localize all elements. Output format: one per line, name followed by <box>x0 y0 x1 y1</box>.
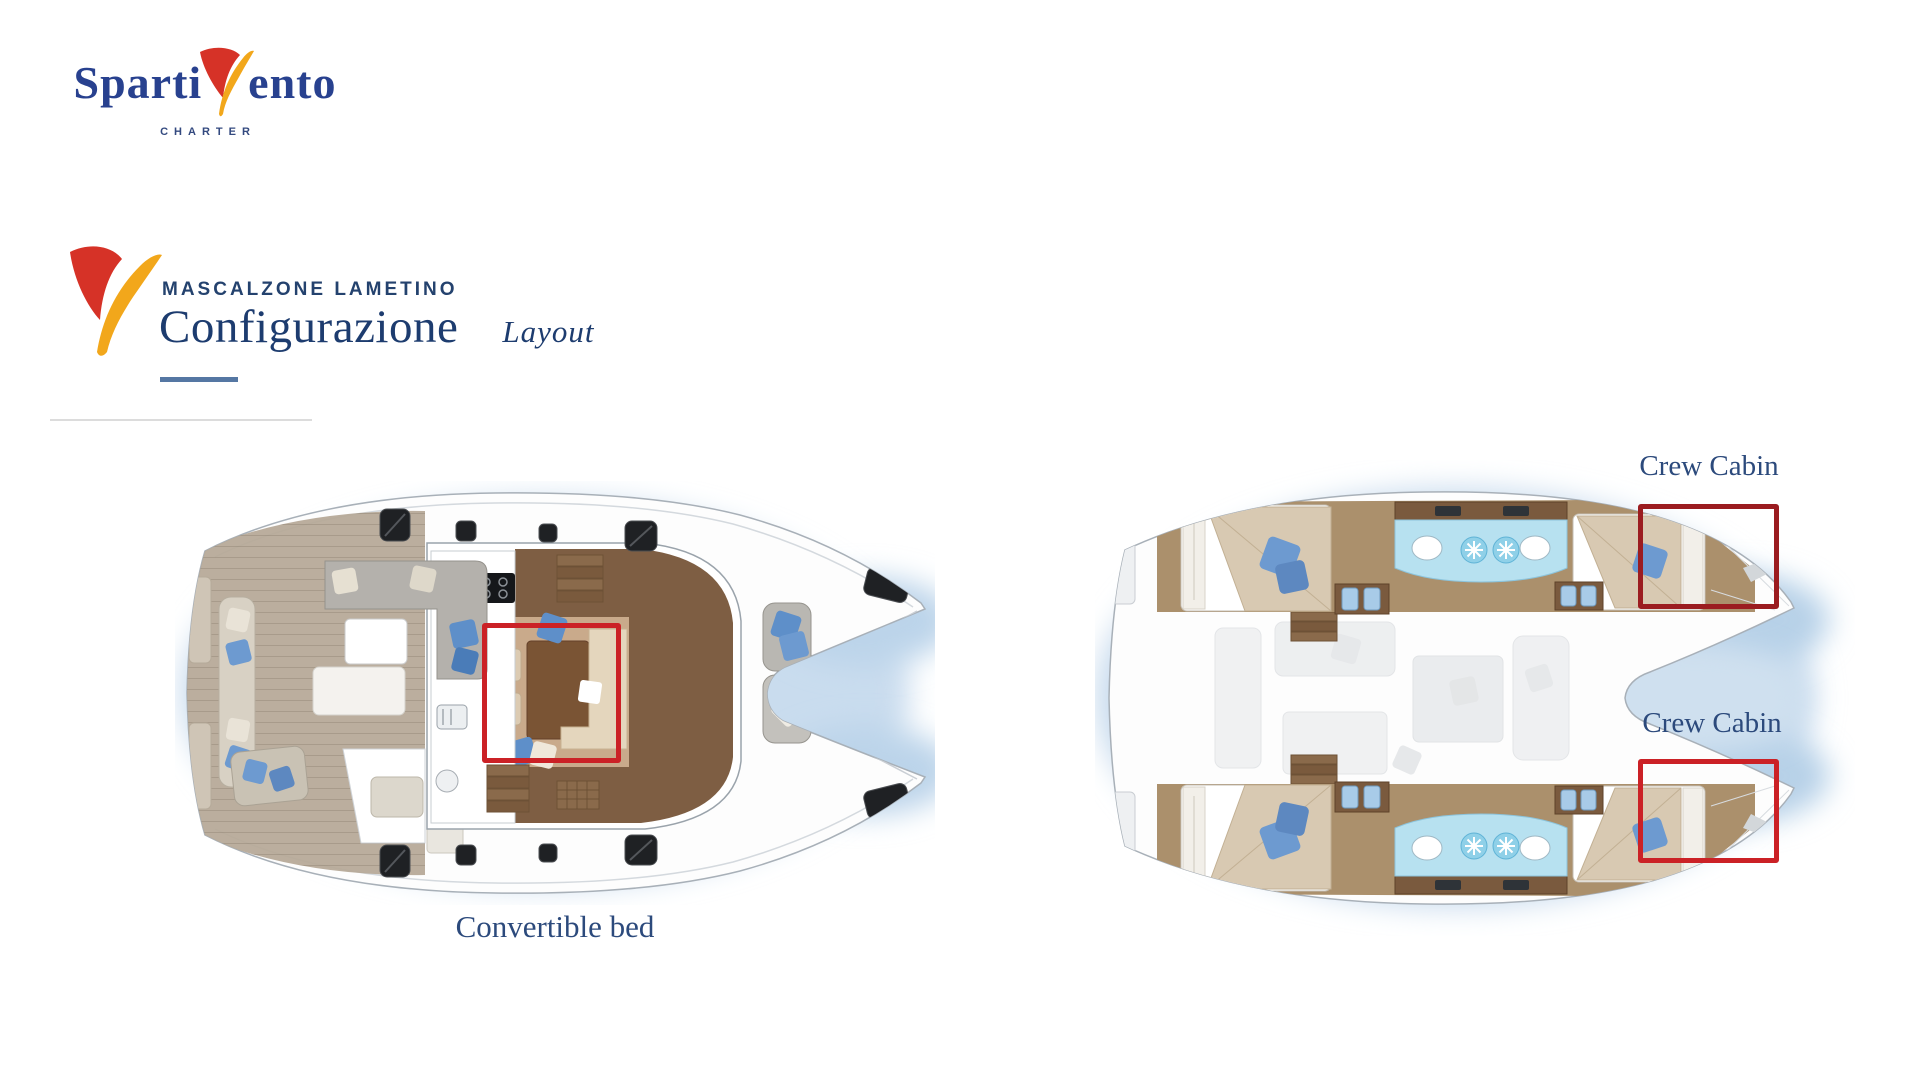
brand-tagline: CHARTER <box>60 126 350 138</box>
brand-wordmark: Sparti ento <box>60 60 350 118</box>
brand-logo: Sparti ento CHARTER <box>60 60 350 138</box>
crew-cabin-label-bottom: Crew Cabin <box>1597 707 1827 740</box>
aft-lounge <box>230 745 309 806</box>
sail-icon <box>198 46 254 118</box>
crew-cabin-label-top: Crew Cabin <box>1594 450 1824 483</box>
section-title-row: Configurazione Layout <box>159 300 594 354</box>
brand-word-end: ento <box>248 60 336 106</box>
title-underline <box>160 377 238 382</box>
divider-line <box>50 419 312 421</box>
convertible-bed-label: Convertible bed <box>410 909 700 945</box>
brand-word-start: Sparti <box>73 60 202 106</box>
highlight-box-convertible-bed <box>482 623 621 763</box>
section-eyebrow: MASCALZONE LAMETINO <box>162 279 458 301</box>
highlight-box-crew-cabin-top <box>1638 504 1779 609</box>
highlight-box-crew-cabin-bottom <box>1638 759 1779 863</box>
sail-icon <box>62 240 164 356</box>
page-title: Configurazione <box>159 300 458 354</box>
slide: Sparti ento CHARTER MASCALZONE LAMETINO … <box>0 0 1920 1080</box>
pantry-locker <box>557 781 599 809</box>
page-subtitle: Layout <box>502 314 594 350</box>
